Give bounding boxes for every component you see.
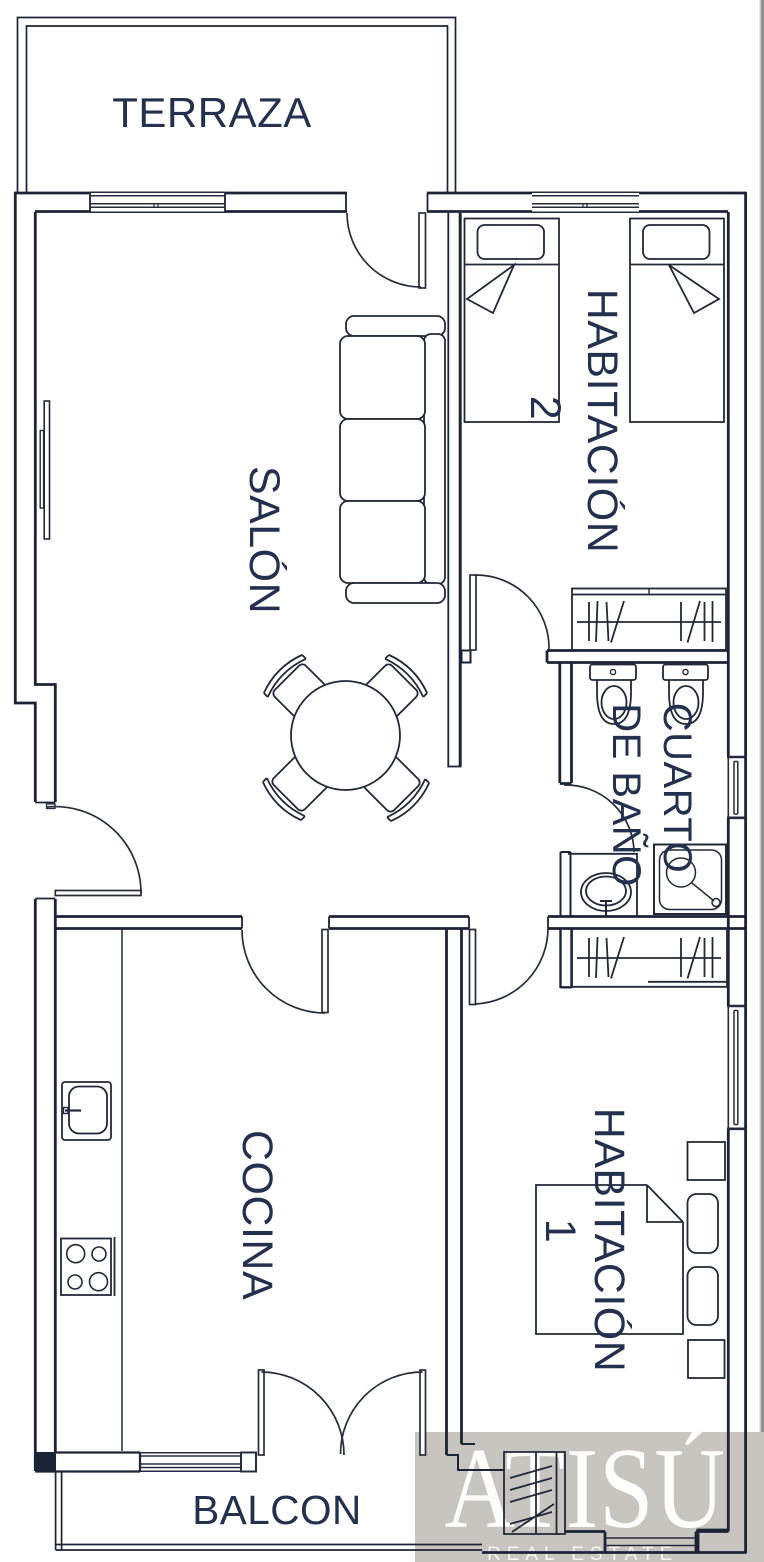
svg-text:1: 1 [536,1219,584,1243]
svg-text:BALCON: BALCON [192,1487,362,1533]
svg-text:DE BAÑO: DE BAÑO [604,703,649,887]
svg-text:SALÓN: SALÓN [240,466,288,614]
svg-text:ATISÚ: ATISÚ [445,1426,726,1553]
svg-text:COCINA: COCINA [233,1130,281,1300]
svg-text:TERRAZA: TERRAZA [112,89,312,136]
svg-text:2: 2 [521,396,569,420]
svg-text:CUARTO: CUARTO [655,703,699,873]
svg-text:HABITACIÓN: HABITACIÓN [585,1108,633,1373]
svg-text:HABITACIÓN: HABITACIÓN [578,289,626,554]
